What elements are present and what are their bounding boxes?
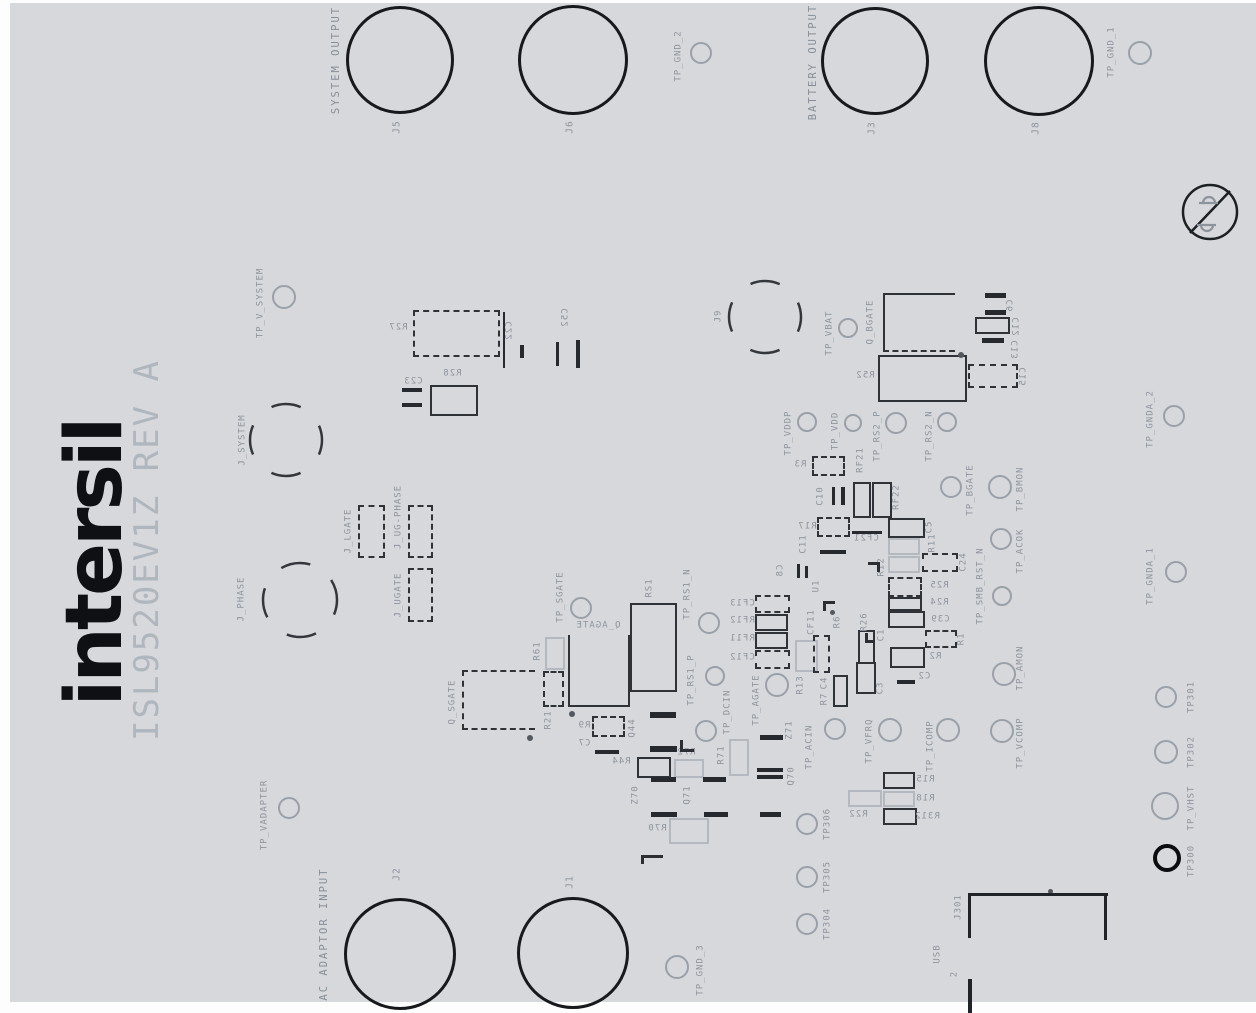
- group-label-system-output: SYSTEM OUTPUT: [331, 6, 342, 114]
- tp-tp-gnd-1-circle: [1128, 41, 1152, 65]
- silk-label-c10: C10: [817, 486, 826, 505]
- comp-c15: [968, 364, 1018, 388]
- silk-label-z71: Z71: [786, 720, 795, 739]
- jack-j6-label: J6: [565, 120, 575, 133]
- tp-tp-gnda-1-label: TP_GNDA_1: [1147, 547, 1156, 605]
- corner-mark: [865, 633, 875, 643]
- silk-label-q71: Q71: [684, 785, 693, 804]
- tp-tp302-label: TP302: [1188, 736, 1197, 768]
- tp-tp-acin-circle: [824, 718, 846, 740]
- comp-r28: [430, 385, 478, 416]
- comp-r2: [890, 647, 925, 668]
- comp-r18-label: R18: [915, 795, 934, 804]
- solder-pad-mark: [897, 680, 915, 684]
- jack-j5: [346, 6, 454, 114]
- silk-label-q70: Q70: [788, 766, 797, 785]
- board-edge-top: [0, 0, 1256, 3]
- solder-pad-mark: [651, 812, 677, 817]
- tp-tp301-circle: [1155, 686, 1177, 708]
- comp-q-sgate-label: Q_SGATE: [449, 680, 458, 725]
- tp-tp-smb-rst-n-label: TP_SMB_RST_N: [977, 547, 986, 624]
- tp-tp-dcin-label: TP_DCIN: [724, 690, 733, 735]
- tp-tp-smb-rst-n-circle: [992, 586, 1012, 606]
- solder-pad-mark: [760, 735, 783, 740]
- connector-outline-segment: [968, 979, 972, 1013]
- comp-cf13: [755, 595, 790, 613]
- tp-tp-gnda-1-circle: [1165, 561, 1187, 583]
- jumper-j9-label: J9: [715, 310, 724, 323]
- tp-tp-vfrq-circle: [878, 718, 902, 742]
- comp-r52: [878, 355, 967, 402]
- solder-pad-mark: [760, 812, 781, 817]
- comp-r22-label: R22: [848, 811, 867, 820]
- solder-pad-mark: [805, 566, 808, 578]
- silk-label-c11: C11: [800, 534, 809, 553]
- silk-label-c2: C2: [918, 673, 931, 682]
- comp-r9-label: R9: [578, 722, 591, 731]
- silk-label-c23: C23: [403, 378, 422, 387]
- silk-label-cf11: CF11: [808, 609, 817, 635]
- comp-r13-label: R13: [797, 675, 806, 694]
- comp-r15-label: R15: [915, 776, 934, 785]
- tp-tp-v-system-circle: [272, 285, 296, 309]
- tp-tp-vadapter-circle: [278, 797, 300, 819]
- tp-tp-gnd-2-label: TP_GND_2: [675, 30, 684, 81]
- comp-r1: [925, 630, 957, 648]
- silk-label-c6: C6: [1007, 300, 1016, 313]
- solder-pad-mark: [757, 768, 783, 772]
- comp-c39-label: C39: [930, 616, 949, 625]
- pcb-silkscreen-drawing: intersil ISL9520EV1Z REV A SYSTEM OUTPUT…: [0, 0, 1256, 1013]
- silk-label-c1: C1: [878, 629, 887, 642]
- corner-mark: [868, 562, 880, 572]
- comp-r44-label: R44: [611, 758, 630, 767]
- comp-r24-label: R24: [929, 599, 948, 608]
- comp-r3: [812, 456, 845, 476]
- comp-r27: [413, 310, 500, 357]
- comp-r28-label: R28: [442, 370, 461, 379]
- jack-j1-label: J1: [565, 875, 575, 888]
- tp-tp-vadapter-label: TP_VADAPTER: [261, 780, 270, 851]
- comp-r72: [674, 759, 704, 778]
- comp-r27-label: R27: [388, 324, 407, 333]
- comp-r17: [817, 517, 850, 537]
- jumper-j-phase: [263, 563, 337, 637]
- comp-rs1-label: RS1: [646, 578, 655, 597]
- comp-r25-label: R25: [929, 582, 948, 591]
- group-label-battery-output: BATTERY OUTPUT: [808, 4, 819, 121]
- tp-tp-vhst-circle: [1151, 792, 1179, 820]
- jack-j8-label: J8: [1031, 121, 1041, 134]
- jack-j8: [984, 6, 1094, 116]
- comp-c3-label: C3: [877, 682, 886, 695]
- group-label-ac-adaptor-input: AC ADAPTOR INPUT: [319, 867, 330, 1000]
- solder-pad-mark: [820, 550, 846, 554]
- tp-tp-icomp-circle: [936, 718, 960, 742]
- tp-tp-gnd-2-circle: [690, 42, 712, 64]
- tp-tp301-label: TP301: [1188, 681, 1197, 713]
- corner-mark: [823, 601, 835, 611]
- comp-r52-label: R52: [855, 372, 874, 381]
- comp-c12: [975, 317, 1010, 334]
- tp-tp305-circle: [796, 866, 818, 888]
- comp-r61: [545, 637, 565, 670]
- silk-label-c13: C13: [1012, 340, 1021, 359]
- silk-label-c8: C8: [777, 565, 786, 578]
- silk-label-c52: C52: [562, 308, 571, 327]
- solder-pad-mark: [651, 777, 676, 782]
- jumper-j-phase-label: J_PHASE: [238, 577, 247, 622]
- comp-rs1: [630, 603, 677, 692]
- connector-outline-segment: [1104, 896, 1107, 940]
- comp-q-sgate: [462, 670, 535, 730]
- comp-r312: [883, 808, 917, 825]
- silk-label-usb: USB: [934, 944, 943, 963]
- comp-r61-label: R61: [534, 641, 543, 660]
- comp-r7-body: [833, 675, 848, 707]
- comp-r24: [888, 597, 922, 611]
- comp-j-ug-phase-label: J_UG-PHASE: [395, 485, 404, 549]
- tp-tp-bgate-label: TP_BGATE: [967, 464, 976, 515]
- corner-mark: [641, 855, 663, 864]
- comp-c39: [888, 611, 925, 628]
- comp-r9: [592, 716, 625, 737]
- comp-r70-label: R70: [647, 825, 666, 834]
- comp-j-lgate: [358, 505, 385, 558]
- connector-outline-segment: [968, 896, 971, 938]
- comp-r11-label: R11: [929, 533, 938, 552]
- comp-c3: [856, 662, 876, 694]
- comp-r21-label: R21: [545, 710, 554, 729]
- tp-tp305-label: TP305: [824, 861, 833, 893]
- tp-tp302-circle: [1154, 740, 1178, 764]
- solder-pad-mark: [841, 487, 845, 505]
- comp-r312-label: R312: [914, 813, 940, 822]
- tp-tp-acok-circle: [990, 528, 1012, 550]
- jack-j3: [821, 7, 929, 115]
- silk-label-u1: U1: [813, 580, 822, 593]
- comp-c5: [888, 518, 925, 538]
- board-edge-bottom: [0, 1002, 1256, 1013]
- comp-r25: [888, 577, 922, 597]
- solder-pad-mark: [402, 388, 422, 392]
- tp-tp300-circle: [1153, 844, 1181, 872]
- solder-pad-mark: [985, 310, 1006, 315]
- comp-r12: [888, 556, 920, 573]
- comp-j-ug-phase: [408, 505, 433, 558]
- solder-pad-mark: [650, 712, 676, 718]
- tp-tp-agate-circle: [765, 673, 789, 697]
- comp-r2-label: R2: [929, 653, 942, 662]
- silk-label-q44: Q44: [629, 718, 638, 737]
- comp-c5-label: C5: [926, 521, 935, 534]
- via-dot: [527, 735, 533, 741]
- solder-pad-mark: [576, 340, 580, 368]
- tp-tp-agate-label: TP_AGATE: [753, 674, 762, 725]
- tp-tp-amon-circle: [992, 662, 1016, 686]
- comp-q-agate-label: Q_AGATE: [576, 622, 621, 631]
- tp-tp304-label: TP304: [824, 908, 833, 940]
- tp-tp-amon-label: TP_AMON: [1017, 646, 1026, 691]
- comp-q-bgate: [883, 293, 955, 352]
- solder-pad-mark: [520, 345, 524, 358]
- solder-pad-mark: [982, 338, 1004, 343]
- tp-tp-vfrq-label: TP_VFRQ: [866, 719, 875, 764]
- corner-mark: [680, 740, 694, 752]
- comp-cf12: [755, 650, 790, 669]
- solder-pad-mark: [703, 777, 726, 782]
- comp-r71: [729, 739, 749, 776]
- comp-j-ugate-label: J_UGATE: [395, 573, 404, 618]
- tp-tp-vbat-label: TP_VBAT: [826, 311, 835, 356]
- comp-r22: [848, 790, 882, 807]
- tp-tp-rs2-n-label: TP_RS2_N: [926, 410, 935, 461]
- comp-r70: [669, 818, 709, 844]
- tp-tp-gnd-3-label: TP_GND_3: [697, 944, 706, 995]
- comp-rf12: [755, 614, 788, 631]
- comp-r44: [637, 757, 671, 778]
- tp-tp-sgate-label: TP_SGATE: [557, 571, 566, 622]
- comp-r11: [888, 538, 920, 555]
- silk-label-r6: R6: [834, 616, 843, 629]
- solder-pad-mark: [704, 812, 728, 817]
- tp-tp-bgate-circle: [940, 476, 962, 498]
- comp-c24-label: C24: [960, 552, 969, 571]
- tp-tp-vcomp-circle: [990, 719, 1014, 743]
- jumper-j-system-label: J_SYSTEM: [239, 414, 248, 465]
- silk-label-c4: C4: [821, 677, 830, 690]
- jack-j1: [517, 897, 629, 1009]
- tp-tp-vddp-label: TP_VDDP: [785, 411, 794, 456]
- comp-rf12-label: RF12: [729, 617, 755, 626]
- tp-tp-vddp-circle: [797, 412, 817, 432]
- via-dot: [958, 352, 964, 358]
- jack-j6: [518, 5, 628, 115]
- tp-tp304-circle: [796, 913, 818, 935]
- tp-tp-gnd-3-circle: [665, 955, 689, 979]
- tp-tp-sgate-circle: [570, 597, 592, 619]
- tp-tp-rs2-p-label: TP_RS2_P: [874, 410, 883, 461]
- solder-pad-mark: [556, 342, 559, 366]
- comp-j-ugate: [408, 568, 433, 622]
- tp-tp-vdd-circle: [844, 414, 862, 432]
- comp-r1-label: R1: [958, 633, 967, 646]
- comp-rf21-body: [853, 482, 871, 518]
- silk-label-r26: R26: [861, 612, 870, 631]
- tp-tp-gnda-2-label: TP_GNDA_2: [1147, 390, 1156, 448]
- comp-rf11-label: RF11: [729, 635, 755, 644]
- tp-tp-rs1-p-label: TP_RS1_P: [688, 654, 697, 705]
- board-edge-left: [0, 0, 10, 1013]
- tp-tp-gnda-2-circle: [1163, 405, 1185, 427]
- silk-label-rf22: RF22: [893, 484, 902, 510]
- silk-label-z70: Z70: [632, 785, 641, 804]
- jack-j2: [344, 898, 456, 1010]
- solder-pad-mark: [650, 746, 677, 752]
- comp-r21: [543, 671, 564, 707]
- silk-label-c7: C7: [578, 740, 591, 749]
- comp-r15: [883, 772, 915, 789]
- silk-label-c22: C22: [506, 321, 515, 340]
- tp-tp-rs2-p-circle: [885, 412, 907, 434]
- comp-j-lgate-label: J_LGATE: [345, 509, 354, 554]
- silk-label-r7: R7: [821, 693, 830, 706]
- orientation-mark: [1183, 185, 1237, 239]
- comp-c24: [922, 553, 958, 572]
- comp-rf11: [755, 632, 788, 649]
- tp-tp-vdd-label: TP_VDD: [832, 412, 841, 451]
- tp-tp-vcomp-label: TP_VCOMP: [1017, 717, 1026, 768]
- tp-tp-acin-label: TP_ACIN: [806, 725, 815, 770]
- solder-pad-mark: [503, 312, 505, 368]
- solder-pad-mark: [852, 531, 882, 534]
- solder-pad-mark: [832, 487, 835, 505]
- tp-tp-acok-label: TP_ACOK: [1017, 529, 1026, 574]
- silk-label-2: 2: [951, 971, 960, 977]
- comp-r18: [883, 791, 915, 807]
- tp-tp-bmon-circle: [988, 475, 1012, 499]
- tp-tp300-label: TP300: [1188, 845, 1197, 877]
- solder-pad-mark: [402, 403, 422, 407]
- comp-r3-label: R3: [794, 461, 807, 470]
- comp-r17-label: R17: [797, 523, 816, 532]
- tp-tp-v-system-label: TP_V_SYSTEM: [257, 268, 266, 339]
- connector-outline-segment: [968, 893, 1108, 896]
- comp-c12-label: C12: [1013, 317, 1022, 336]
- silk-label-cf21: CF21: [853, 535, 879, 544]
- comp-r71-label: R71: [718, 745, 727, 764]
- via-dot: [569, 711, 575, 717]
- tp-tp306-label: TP306: [824, 808, 833, 840]
- jumper-j9: [729, 281, 801, 353]
- board-title: ISL9520EV1Z REV A: [127, 359, 167, 741]
- solder-pad-mark: [757, 775, 783, 779]
- comp-c4-body: [813, 635, 830, 673]
- jack-j3-label: J3: [867, 121, 877, 134]
- solder-pad-mark: [595, 750, 619, 754]
- tp-tp-rs1-n-circle: [698, 612, 720, 634]
- comp-cf13-label: CF13: [729, 600, 755, 609]
- tp-tp-rs1-n-label: TP_RS1_N: [684, 568, 693, 619]
- jumper-j-system: [250, 404, 322, 476]
- solder-pad-mark: [797, 564, 800, 578]
- silk-label-rf21: RF21: [857, 447, 866, 473]
- tp-tp-bmon-label: TP_BMON: [1017, 467, 1026, 512]
- tp-tp-gnd-1-label: TP_GND_1: [1108, 26, 1117, 77]
- tp-tp-rs2-n-circle: [937, 412, 957, 432]
- tp-tp306-circle: [796, 813, 818, 835]
- comp-q-agate: [568, 635, 630, 707]
- comp-cf12-label: CF12: [729, 654, 755, 663]
- comp-rf22-body: [872, 482, 892, 518]
- comp-c15-label: C15: [1020, 367, 1029, 386]
- tp-tp-icomp-label: TP_ICOMP: [927, 720, 936, 771]
- solder-pad-mark: [985, 293, 1006, 298]
- silk-label-j301: J301: [955, 894, 964, 920]
- comp-q-bgate-label: Q_BGATE: [867, 300, 876, 345]
- tp-tp-vhst-label: TP_VHST: [1188, 786, 1197, 831]
- tp-tp-vbat-circle: [838, 318, 858, 338]
- tp-tp-rs1-p-circle: [705, 666, 725, 686]
- dashed-jumper-layer: [0, 0, 1256, 1013]
- jack-j2-label: J2: [392, 867, 402, 880]
- tp-tp-dcin-circle: [695, 720, 717, 742]
- jack-j5-label: J5: [392, 120, 402, 133]
